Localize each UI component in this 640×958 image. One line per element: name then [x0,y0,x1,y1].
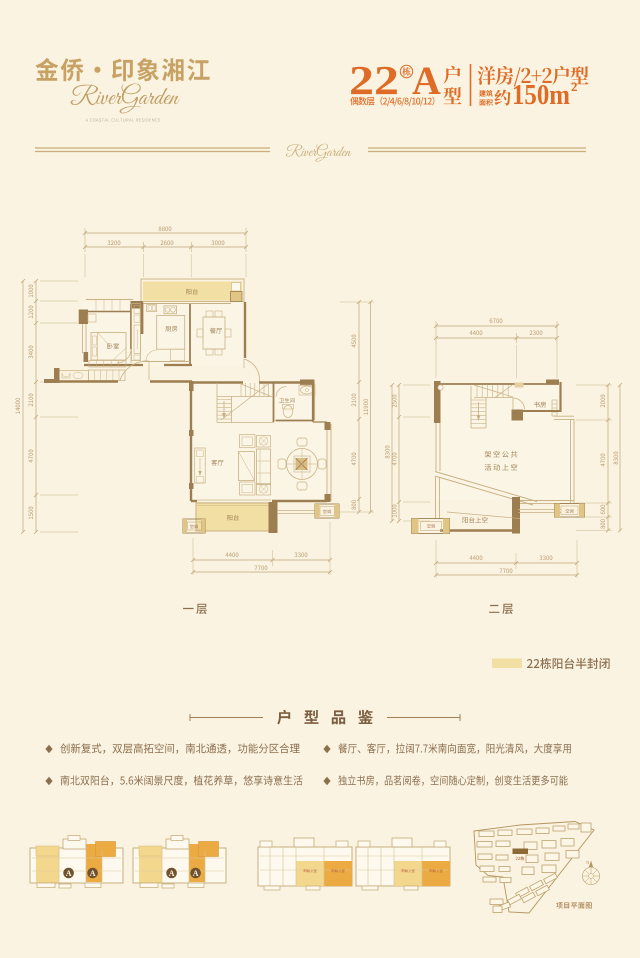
svg-text:A: A [412,58,441,103]
svg-text:A: A [193,869,199,878]
svg-text:2: 2 [571,79,578,94]
svg-text:A: A [169,869,175,878]
svg-text:A: A [66,869,72,878]
svg-text:22: 22 [349,57,399,103]
svg-text:150m: 150m [512,80,570,111]
svg-text:A: A [90,869,96,878]
